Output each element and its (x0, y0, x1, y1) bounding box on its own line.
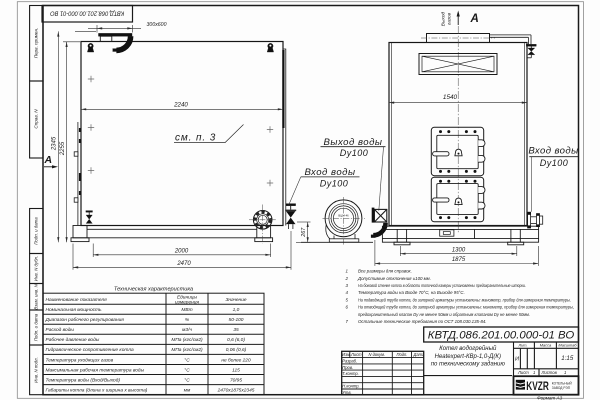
svg-text:Н.контр.: Н.контр. (342, 384, 359, 389)
svg-text:0,06 (0,6): 0,06 (0,6) (226, 347, 247, 353)
svg-text:ЗАВОД РЭП: ЗАВОД РЭП (552, 386, 571, 390)
svg-text:Dy100: Dy100 (540, 158, 569, 168)
svg-text:Масштаб: Масштаб (558, 343, 577, 348)
svg-text:Температура воды на Входе 70°: Температура воды на Входе 70°С, на Выход… (358, 290, 465, 295)
svg-text:Температура уходящих газов: Температура уходящих газов (46, 357, 114, 363)
svg-text:Листов: Листов (541, 370, 558, 375)
svg-text:2240: 2240 (173, 102, 188, 109)
svg-text:1540: 1540 (443, 94, 458, 101)
svg-text:1: 1 (346, 269, 349, 274)
svg-text:°С: °С (184, 367, 190, 373)
svg-text:КВТД.086.201.00.000-01 ВО: КВТД.086.201.00.000-01 ВО (428, 330, 575, 342)
svg-text:Подп. и дата: Подп. и дата (34, 313, 39, 341)
svg-text:°С: °С (184, 377, 190, 383)
svg-text:МПа (кгс/см2): МПа (кгс/см2) (171, 337, 203, 343)
svg-text:Котел водогрейный: Котел водогрейный (439, 345, 497, 352)
svg-text:70/95: 70/95 (230, 377, 242, 383)
svg-text:Пров.: Пров. (342, 365, 353, 370)
svg-text:А: А (44, 154, 53, 166)
svg-text:2000: 2000 (174, 248, 189, 254)
svg-text:Heatexpert-КВр-1,0-Д(К): Heatexpert-КВр-1,0-Д(К) (435, 354, 501, 360)
svg-text:1:15: 1:15 (561, 355, 574, 362)
svg-text:На боковой стенке котла в обла: На боковой стенке котла в области топочн… (358, 283, 526, 288)
svg-text:мм: мм (184, 388, 191, 393)
svg-text:Справ. N: Справ. N (34, 109, 39, 129)
svg-text:На отводящей трубе котла,: На отводящей трубе котла, до запорной ар… (358, 305, 574, 310)
svg-text:см. п. 3: см. п. 3 (175, 133, 216, 144)
svg-text:1,0: 1,0 (233, 307, 240, 313)
svg-text:Подп. и дата: Подп. и дата (34, 217, 39, 245)
svg-text:Допустимые отклонения ±100 мм: Допустимые отклонения ±100 мм. (357, 276, 431, 281)
svg-text:Взам. инв. N: Взам. инв. N (34, 283, 39, 309)
svg-text:ВЦ14-46: ВЦ14-46 (338, 214, 349, 218)
svg-text:Формат А3: Формат А3 (537, 396, 563, 400)
svg-text:115: 115 (232, 367, 240, 373)
svg-text:МВт: МВт (181, 307, 192, 313)
svg-text:Расход воды: Расход воды (46, 327, 75, 333)
svg-text:Остальные технические требован: Остальные технические требования по ОСТ … (358, 319, 487, 324)
svg-text:2: 2 (345, 276, 349, 281)
svg-text:м3/ч: м3/ч (182, 327, 192, 333)
svg-text:7: 7 (346, 319, 349, 324)
svg-text:1875: 1875 (452, 257, 466, 263)
svg-text:измерения: измерения (175, 300, 199, 305)
svg-text:газов: газов (448, 12, 453, 25)
svg-text:Dy100: Dy100 (340, 148, 369, 158)
svg-text:N докум.: N докум. (369, 352, 386, 357)
svg-text:по техническому заданию: по техническому заданию (431, 362, 506, 368)
svg-text:Изм.: Изм. (342, 352, 351, 357)
svg-text:На подводящей трубе котла,: На подводящей трубе котла, до запорной а… (358, 297, 571, 302)
svg-text:Утв.: Утв. (342, 390, 351, 395)
svg-text:И: И (515, 357, 519, 363)
svg-text:КВТД.068.201.00.000-01 ВО: КВТД.068.201.00.000-01 ВО (50, 9, 124, 15)
svg-text:не более 220: не более 220 (221, 357, 251, 363)
svg-text:35: 35 (233, 327, 239, 333)
svg-text:Выход: Выход (441, 11, 447, 26)
svg-text:Максимальная рабочая температу: Максимальная рабочая температура воды (46, 367, 145, 373)
svg-text:1: 1 (564, 370, 566, 375)
svg-text:1300: 1300 (452, 247, 466, 253)
svg-text:КОТЕЛЬНЫЙ: КОТЕЛЬНЫЙ (552, 381, 573, 385)
svg-text:Инв. N дубл.: Инв. N дубл. (34, 256, 39, 281)
svg-text:2255: 2255 (60, 141, 66, 156)
svg-text:Масса: Масса (540, 343, 552, 348)
svg-text:предохранительный клапан Dу: предохранительный клапан Dу не менее 50м… (358, 312, 530, 317)
svg-text:Лист: Лист (517, 370, 529, 375)
svg-text:%: % (185, 317, 190, 323)
svg-text:Лит.: Лит. (517, 343, 527, 348)
svg-text:Dy100: Dy100 (320, 179, 349, 189)
svg-text:4: 4 (346, 290, 349, 295)
svg-text:Наименование показателя: Наименование показателя (46, 297, 108, 303)
svg-text:2470х1875х2345: 2470х1875х2345 (217, 387, 255, 393)
svg-text:2470: 2470 (176, 261, 191, 267)
svg-text:267: 267 (301, 227, 307, 238)
svg-text:2345: 2345 (52, 136, 58, 151)
svg-text:Подп.: Подп. (397, 352, 408, 357)
svg-text:Габариты котла (длина х ширина: Габариты котла (длина х ширина х высота) (46, 387, 148, 393)
svg-text:50-100: 50-100 (229, 317, 244, 323)
svg-text:°С: °С (184, 357, 190, 363)
svg-text:Разраб.: Разраб. (342, 359, 357, 364)
svg-text:Т.контр.: Т.контр. (342, 371, 359, 376)
svg-text:Лист: Лист (350, 352, 362, 357)
svg-text:МПа (кгс/см2): МПа (кгс/см2) (171, 347, 203, 353)
svg-text:0,6 (6,0): 0,6 (6,0) (227, 337, 245, 343)
svg-text:Температура воды (Вход/Выход): Температура воды (Вход/Выход) (46, 377, 121, 383)
svg-text:Гидравлическое сопротивление к: Гидравлическое сопротивление котла (46, 347, 134, 353)
svg-text:Номинальная мощность: Номинальная мощность (46, 307, 103, 313)
svg-text:А: А (470, 13, 479, 25)
svg-text:Техническая характеристика: Техническая характеристика (114, 287, 193, 293)
svg-text:Значение: Значение (225, 297, 246, 303)
svg-text:Дата: Дата (413, 352, 426, 357)
svg-text:Рабочее давление воды: Рабочее давление воды (46, 337, 100, 343)
svg-text:Перв. примен.: Перв. примен. (34, 28, 39, 59)
svg-text:Инв. N подл.: Инв. N подл. (34, 357, 39, 383)
svg-text:5: 5 (346, 297, 349, 302)
svg-text:Диапазон рабочего регулировани: Диапазон рабочего регулирования (45, 317, 125, 323)
svg-text:KVZR: KVZR (526, 379, 549, 393)
svg-text:300х600: 300х600 (147, 22, 167, 28)
svg-text:1: 1 (533, 370, 535, 375)
svg-text:3: 3 (346, 283, 349, 288)
svg-text:6: 6 (346, 305, 349, 310)
svg-text:Все размеры для справок.: Все размеры для справок. (358, 269, 412, 274)
svg-text:Вход воды: Вход воды (528, 146, 578, 157)
